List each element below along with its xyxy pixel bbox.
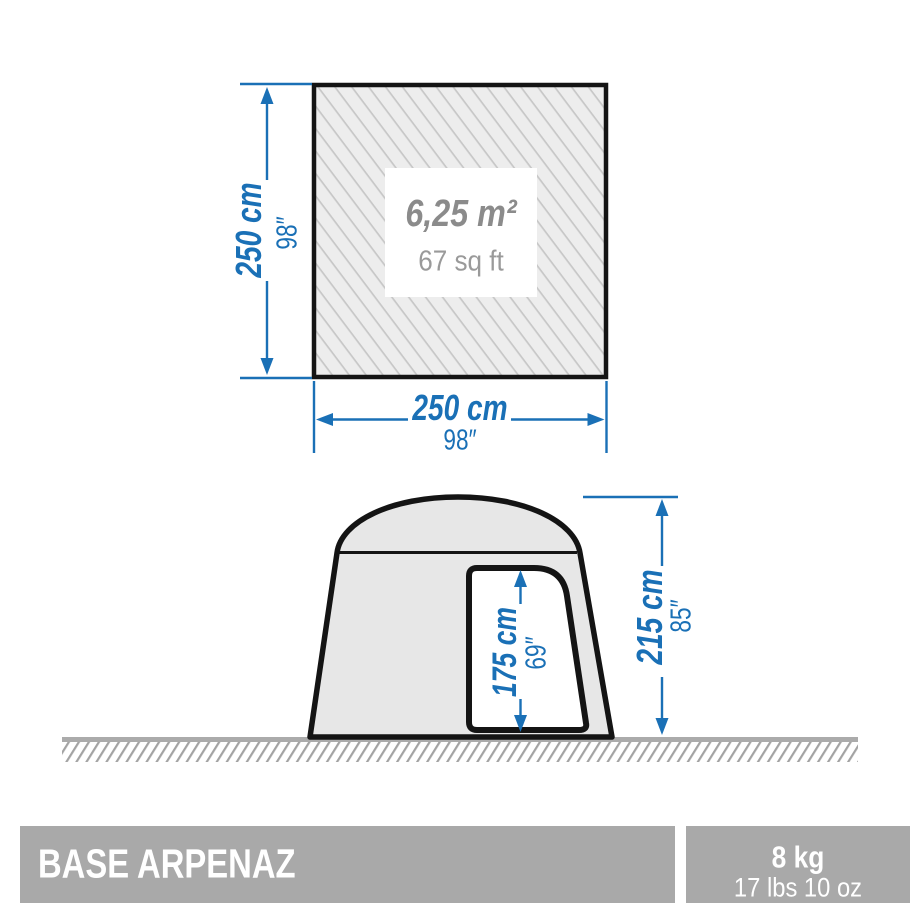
arrow-up-icon [261, 87, 274, 104]
width-imperial-label: 98″ [443, 427, 476, 456]
tent-height-metric-label: 215 cm [632, 569, 668, 664]
depth-metric-label: 250 cm [231, 182, 267, 277]
arrow-up-icon [656, 499, 669, 516]
width-metric-label: 250 cm [412, 390, 507, 426]
weight-metric-label: 8 kg [772, 842, 825, 873]
arrow-right-icon [588, 413, 605, 426]
weight-imperial-label: 17 lbs 10 oz [734, 875, 862, 902]
arrow-down-icon [656, 718, 669, 735]
area-metric-label: 6,25 m² [405, 195, 516, 233]
ground-hatch [62, 742, 858, 762]
door-height-metric-label: 175 cm [488, 607, 522, 697]
area-imperial-label: 67 sq ft [418, 248, 504, 277]
arrow-left-icon [316, 413, 333, 426]
door-height-imperial-label: 69″ [523, 636, 552, 669]
depth-imperial-label: 98″ [274, 216, 303, 249]
product-dimension-diagram: 250 cm 98″ 250 cm 98″ 6,25 m² 67 sq ft 1… [0, 0, 920, 920]
product-name: BASE ARPENAZ [38, 844, 296, 885]
side-view [62, 497, 858, 762]
diagram-graphics [0, 0, 920, 920]
weight-bar: 8 kg 17 lbs 10 oz [686, 826, 910, 903]
tent-height-imperial-label: 85″ [668, 599, 697, 632]
product-name-bar: BASE ARPENAZ [20, 826, 675, 903]
arrow-down-icon [261, 358, 274, 375]
